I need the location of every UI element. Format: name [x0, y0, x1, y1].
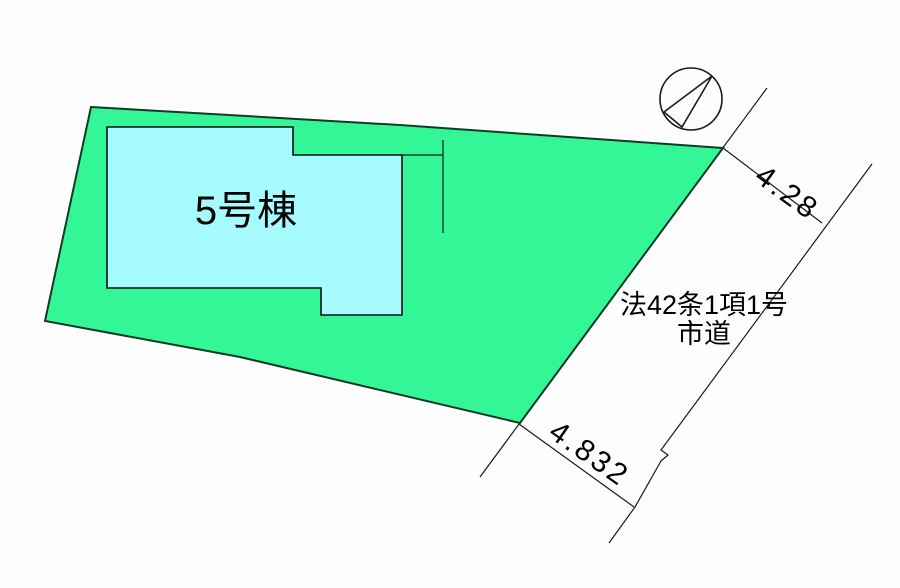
road-regulation-label-line1: 法42条1項1号: [620, 290, 788, 320]
dimension-label-bottom: 4.832: [543, 415, 636, 494]
north-arrow-icon: [660, 68, 722, 130]
north-arrow-needle: [664, 76, 712, 127]
site-plan-drawing: 5号棟 法42条1項1号 市道 4.28 4.832: [0, 0, 900, 588]
site-plan-canvas: 5号棟 法42条1項1号 市道 4.28 4.832: [0, 0, 900, 588]
building-label: 5号棟: [195, 189, 297, 233]
north-arrow-circle: [660, 68, 722, 130]
road-regulation-label-line2: 市道: [677, 319, 731, 349]
